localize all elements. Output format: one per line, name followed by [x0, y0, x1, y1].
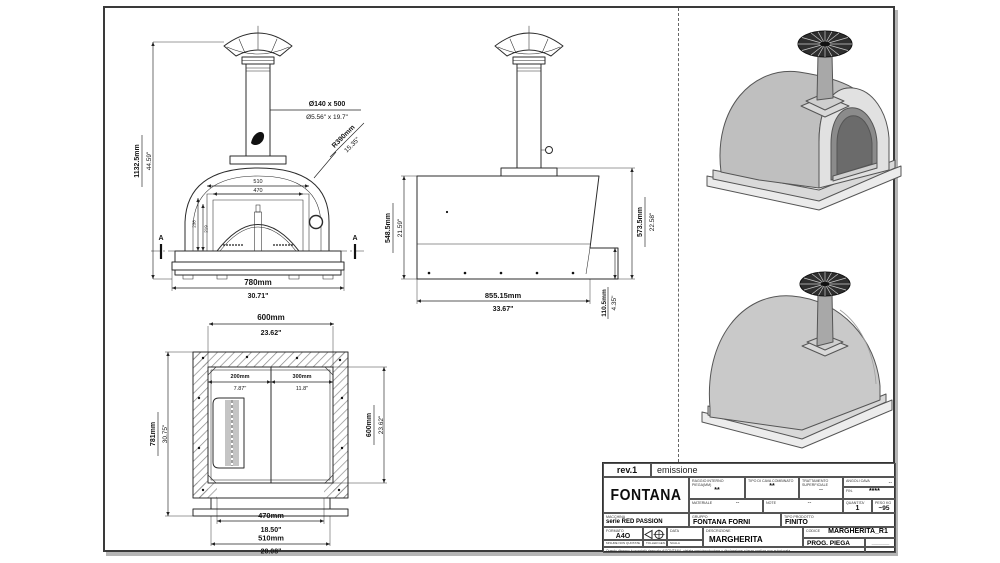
gruppo-value: FONTANA FORNI: [690, 519, 780, 526]
isometric-front-view: [697, 22, 912, 227]
trattamento-label: TRATTAMENTO SUPERFICIALE: [800, 478, 842, 487]
dim-plan-width-mm: 600mm: [257, 313, 285, 322]
iso-chimney-cap: [800, 272, 850, 296]
vent-dots: [223, 244, 293, 246]
dim-opening-h2: 219: [204, 225, 209, 233]
misure-label: MISURE NON QUOTATE: [604, 541, 642, 545]
title-block: rev.1 emissione FONTANA RAGGIO INTERNO P…: [602, 462, 895, 552]
chimney-pipe-drawing: [230, 64, 286, 164]
macchina-cell: MACCHINA serie RED PASSION: [603, 513, 689, 527]
gruppo-cell: GRUPPO FONTANA FORNI: [689, 513, 781, 527]
iso-chimney-pipe: [817, 294, 833, 346]
iso-chimney-cap: [798, 31, 852, 57]
disclaimer-cell: Questo disegno è proprietà riservata di …: [603, 547, 865, 553]
dim-total-height-mm: 573.5mm: [637, 207, 644, 237]
revision-note-cell: emissione: [651, 463, 896, 477]
tipo-prodotto-value: FINITO: [782, 519, 895, 526]
tipo-prodotto-cell: TIPO PRODOTTO FINITO: [781, 513, 896, 527]
toller-label: TOLLER.GEN.: [644, 541, 666, 545]
dash-value: ––––––––: [866, 539, 895, 546]
dim-slab-in: 20.08": [261, 549, 282, 556]
dim-chimney-mm: Ø140 x 500: [309, 101, 346, 108]
dim-left-seg-in: 7.87": [234, 386, 247, 392]
cava-value: **: [746, 483, 798, 490]
dim-opening-510: 510: [253, 179, 262, 185]
materiale-label: MATERIALE: [690, 500, 713, 505]
dim-plan-width-in: 23.62": [261, 330, 282, 337]
dim-left-seg-mm: 200mm: [231, 374, 250, 380]
plan-door: [213, 398, 244, 468]
drawing-sheet: A A 1132.5mm 44.59" Ø140 x 500 Ø5.56" x …: [103, 6, 895, 552]
iso-dome-rear: [709, 296, 880, 430]
plan-view: 600mm 23.62" 781mm 30.75" 200mm 7.87" 30…: [147, 278, 457, 554]
dim-right-seg-in: 11.8": [296, 386, 308, 392]
dim-plan-inner-depth-in: 23.62": [378, 415, 385, 434]
descrizione-cell: DESCRIZIONE MARGHERITA: [703, 527, 803, 547]
toller-cell: TOLLER.GEN.: [643, 540, 667, 547]
thermometer-circle: [310, 216, 323, 229]
revision-number: rev.1: [604, 464, 650, 477]
formato-value: A4O: [604, 533, 642, 540]
iso-chimney-pipe: [817, 54, 833, 100]
materiale-cell: MATERIALE --: [689, 499, 763, 513]
data-cell: DATA: [667, 527, 703, 540]
revision-note: emissione: [652, 464, 895, 477]
damper-knob: [546, 147, 553, 154]
section-label-left: A: [158, 235, 163, 242]
dim-overall-height-in: 44.59": [146, 151, 153, 170]
formato-cell: FORMATO A4O: [603, 527, 643, 540]
chimney-pipe-drawing: [501, 64, 557, 176]
oven-base-drawing: [172, 251, 344, 279]
trattamento-value: --: [800, 487, 842, 493]
front-elevation-view: A A 1132.5mm 44.59" Ø140 x 500 Ø5.56" x …: [123, 16, 393, 316]
isometric-rear-view: [690, 236, 905, 462]
scala-label: SCALA: [668, 541, 702, 545]
dim-opening-h1: 238: [192, 220, 197, 228]
descrizione-value: MARGHERITA: [704, 533, 802, 544]
views-divider-line: [678, 8, 679, 462]
dash-cell: ––––––––: [865, 538, 896, 547]
note-label: NOTE: [764, 500, 777, 505]
trattamento-cell: TRATTAMENTO SUPERFICIALE --: [799, 477, 843, 499]
prog-value: PROG. PIEGA: [804, 539, 864, 547]
quantita-cell: QUANTITA' 1: [843, 499, 872, 513]
dim-body-height-in: 21.59": [397, 218, 404, 237]
angoli-cell: ANGOLI CAVA --: [843, 477, 896, 487]
codice-label: CODICE: [804, 528, 821, 533]
codice-cell: CODICE MARGHERITA_R1: [803, 527, 896, 538]
dim-door-mm: 470mm: [258, 511, 284, 520]
raggio-label: RAGGIO INTERNO PIEGA(MM): [690, 478, 744, 487]
chimney-cap-drawing: [224, 26, 292, 64]
logo-cell: FONTANA: [603, 477, 689, 513]
quantita-value: 1: [844, 505, 871, 512]
angoli-label: ANGOLI CAVA: [844, 478, 871, 483]
dim-plan-depth-in: 30.75": [162, 424, 169, 443]
dim-chimney-in: Ø5.56" x 19.7": [306, 114, 349, 121]
dim-opening-470: 470: [253, 188, 262, 194]
raggio-cell: RAGGIO INTERNO PIEGA(MM) **: [689, 477, 745, 499]
peso-cell: PESO Kg ~95: [872, 499, 896, 513]
section-label-right: A: [352, 235, 357, 242]
fin-cell: FIN. ****: [843, 487, 896, 499]
drawing-page: A A 1132.5mm 44.59" Ø140 x 500 Ø5.56" x …: [0, 0, 1000, 563]
dim-depth-in: 33.67": [493, 306, 514, 313]
chimney-cap-drawing: [495, 26, 563, 64]
dim-body-height-mm: 548.5mm: [385, 213, 392, 243]
peso-value: ~95: [873, 505, 895, 512]
projection-symbol-icon: [644, 529, 666, 540]
disclaimer-end-cell: [865, 547, 896, 553]
revision-cell: rev.1: [603, 463, 651, 477]
misure-cell: MISURE NON QUOTATE: [603, 540, 643, 547]
dim-plan-inner-depth-mm: 600mm: [366, 413, 373, 437]
raggio-value: **: [690, 487, 744, 494]
dim-overall-height-mm: 1132.5mm: [134, 144, 141, 177]
oven-body-side-drawing: [417, 176, 618, 279]
dim-total-height-in: 22.58": [649, 212, 656, 231]
dim-right-seg-mm: 300mm: [293, 374, 312, 380]
dim-step-mm: 110.5mm: [601, 289, 608, 317]
plan-dimensions: 600mm 23.62" 781mm 30.75" 200mm 7.87" 30…: [150, 313, 387, 556]
angoli-value: --: [889, 478, 895, 486]
cava-cell: TIPO DI CAVA COMBINATO **: [745, 477, 799, 499]
projection-cell: [643, 527, 667, 540]
fin-label: FIN.: [844, 488, 854, 493]
plan-chamber: [208, 367, 333, 483]
prog-cell: PROG. PIEGA: [803, 538, 865, 547]
fontana-logo: FONTANA: [604, 477, 688, 512]
dim-plan-depth-mm: 781mm: [150, 422, 157, 446]
dim-step-in: 4.35": [611, 295, 618, 311]
base-dots: [428, 272, 575, 275]
data-label: DATA: [668, 528, 702, 533]
dim-slab-mm: 510mm: [258, 534, 284, 543]
dim-depth-mm: 855.15mm: [485, 291, 522, 300]
scala-cell: SCALA: [667, 540, 703, 547]
disclaimer-text: Questo disegno è proprietà riservata di …: [604, 548, 864, 553]
note-cell: NOTE --: [763, 499, 843, 513]
side-elevation-view: 548.5mm 21.59" 573.5mm 22.58" 855.15mm 3…: [377, 16, 662, 321]
macchina-value: serie RED PASSION: [604, 519, 688, 525]
